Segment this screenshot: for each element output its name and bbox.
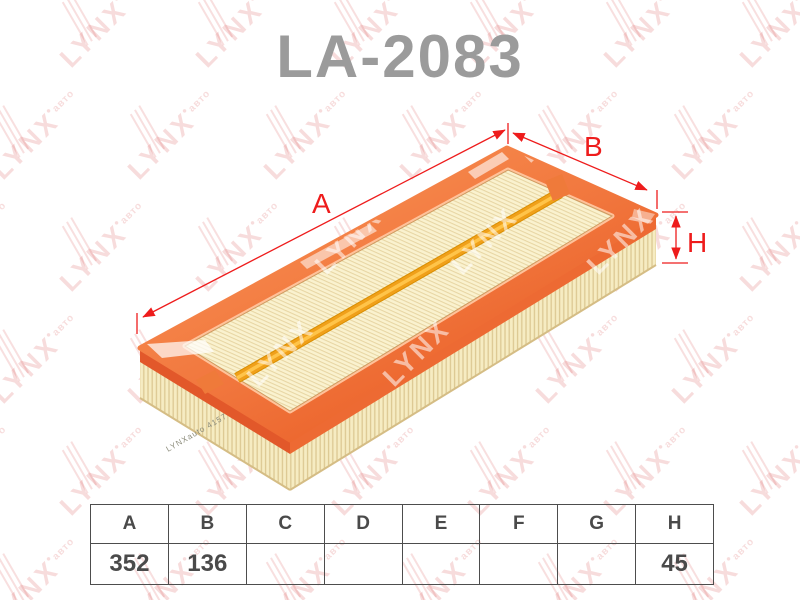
watermark-ghost: LYNX bbox=[377, 89, 456, 168]
watermark-ghost: LYNX bbox=[241, 89, 320, 168]
dimension-value-b: 136 bbox=[168, 544, 246, 585]
part-number-title: LA-2083 bbox=[0, 22, 800, 91]
dimensions-table: ABCDEFGH35213645 bbox=[90, 504, 714, 585]
dimension-header-a: A bbox=[91, 505, 169, 544]
dimension-header-c: C bbox=[246, 505, 324, 544]
dimension-header-d: D bbox=[324, 505, 402, 544]
dim-label-b: B bbox=[584, 131, 603, 162]
dimension-header-f: F bbox=[480, 505, 558, 544]
dimension-value-g bbox=[558, 544, 636, 585]
table-header-row: ABCDEFGH bbox=[91, 505, 714, 544]
table-value-row: 35213645 bbox=[91, 544, 714, 585]
dimension-value-h: 45 bbox=[636, 544, 714, 585]
dimension-value-f bbox=[480, 544, 558, 585]
dimension-header-g: G bbox=[558, 505, 636, 544]
dimension-header-h: H bbox=[636, 505, 714, 544]
dim-label-h: H bbox=[687, 227, 707, 258]
dimension-value-e bbox=[402, 544, 480, 585]
dimension-value-d bbox=[324, 544, 402, 585]
product-card: LYNX•автоLYNX•автоLYNX•автоLYNX•автоLYNX… bbox=[0, 0, 800, 600]
dimension-value-a: 352 bbox=[91, 544, 169, 585]
dim-label-a: A bbox=[312, 188, 331, 219]
dimension-header-b: B bbox=[168, 505, 246, 544]
watermark-ghost: LYNX bbox=[173, 201, 252, 280]
watermark-ghost: LYNX bbox=[513, 89, 592, 168]
dimension-header-e: E bbox=[402, 505, 480, 544]
dimension-value-c bbox=[246, 544, 324, 585]
